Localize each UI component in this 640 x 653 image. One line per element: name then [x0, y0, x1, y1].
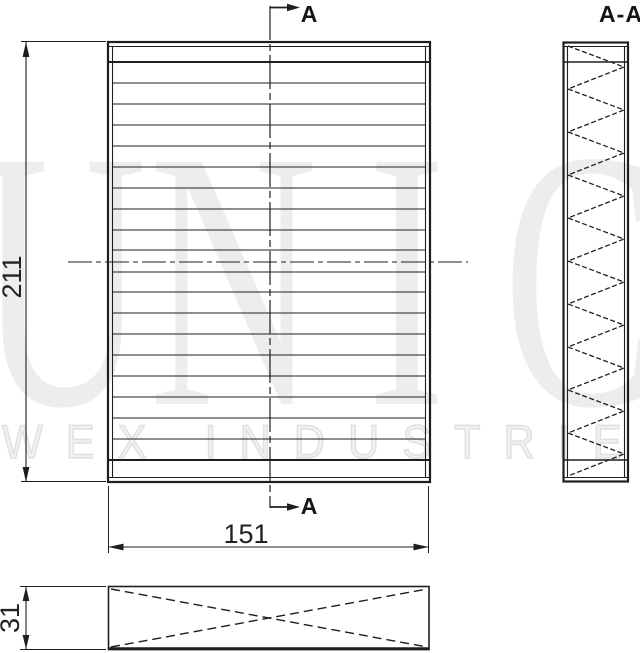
- zigzag-pleat-profile: [568, 46, 624, 476]
- section-label-top: A: [301, 1, 318, 27]
- dim-height-arrow-top: [23, 42, 30, 57]
- section-label-bottom: A: [301, 493, 318, 519]
- section-cut-line: A A: [270, 1, 317, 519]
- bottom-view: [108, 587, 430, 650]
- pleat-lines: [113, 83, 426, 439]
- section-arrow-bottom-head: [287, 503, 300, 510]
- filter-drawing-svg: A A 211 151 A-A: [0, 0, 640, 653]
- dim-depth-value: 31: [0, 603, 25, 633]
- dim-height-value: 211: [0, 255, 27, 298]
- dim-width-arrow-right: [414, 544, 429, 551]
- front-view: [68, 42, 468, 482]
- dim-height-arrow-bottom: [23, 467, 30, 482]
- technical-drawing-page: U N I C WEX INDUSTRIES: [0, 0, 640, 653]
- section-view-a-a: A-A: [564, 1, 640, 482]
- section-view-title: A-A: [599, 1, 640, 27]
- dim-depth-arrow-bottom: [23, 635, 30, 649]
- dimension-depth: 31: [0, 587, 106, 650]
- dim-width-value: 151: [223, 519, 268, 549]
- dimension-width: 151: [109, 486, 429, 553]
- section-arrow-top-head: [287, 4, 300, 11]
- dim-depth-arrow-top: [23, 587, 30, 601]
- dim-width-arrow-left: [109, 544, 124, 551]
